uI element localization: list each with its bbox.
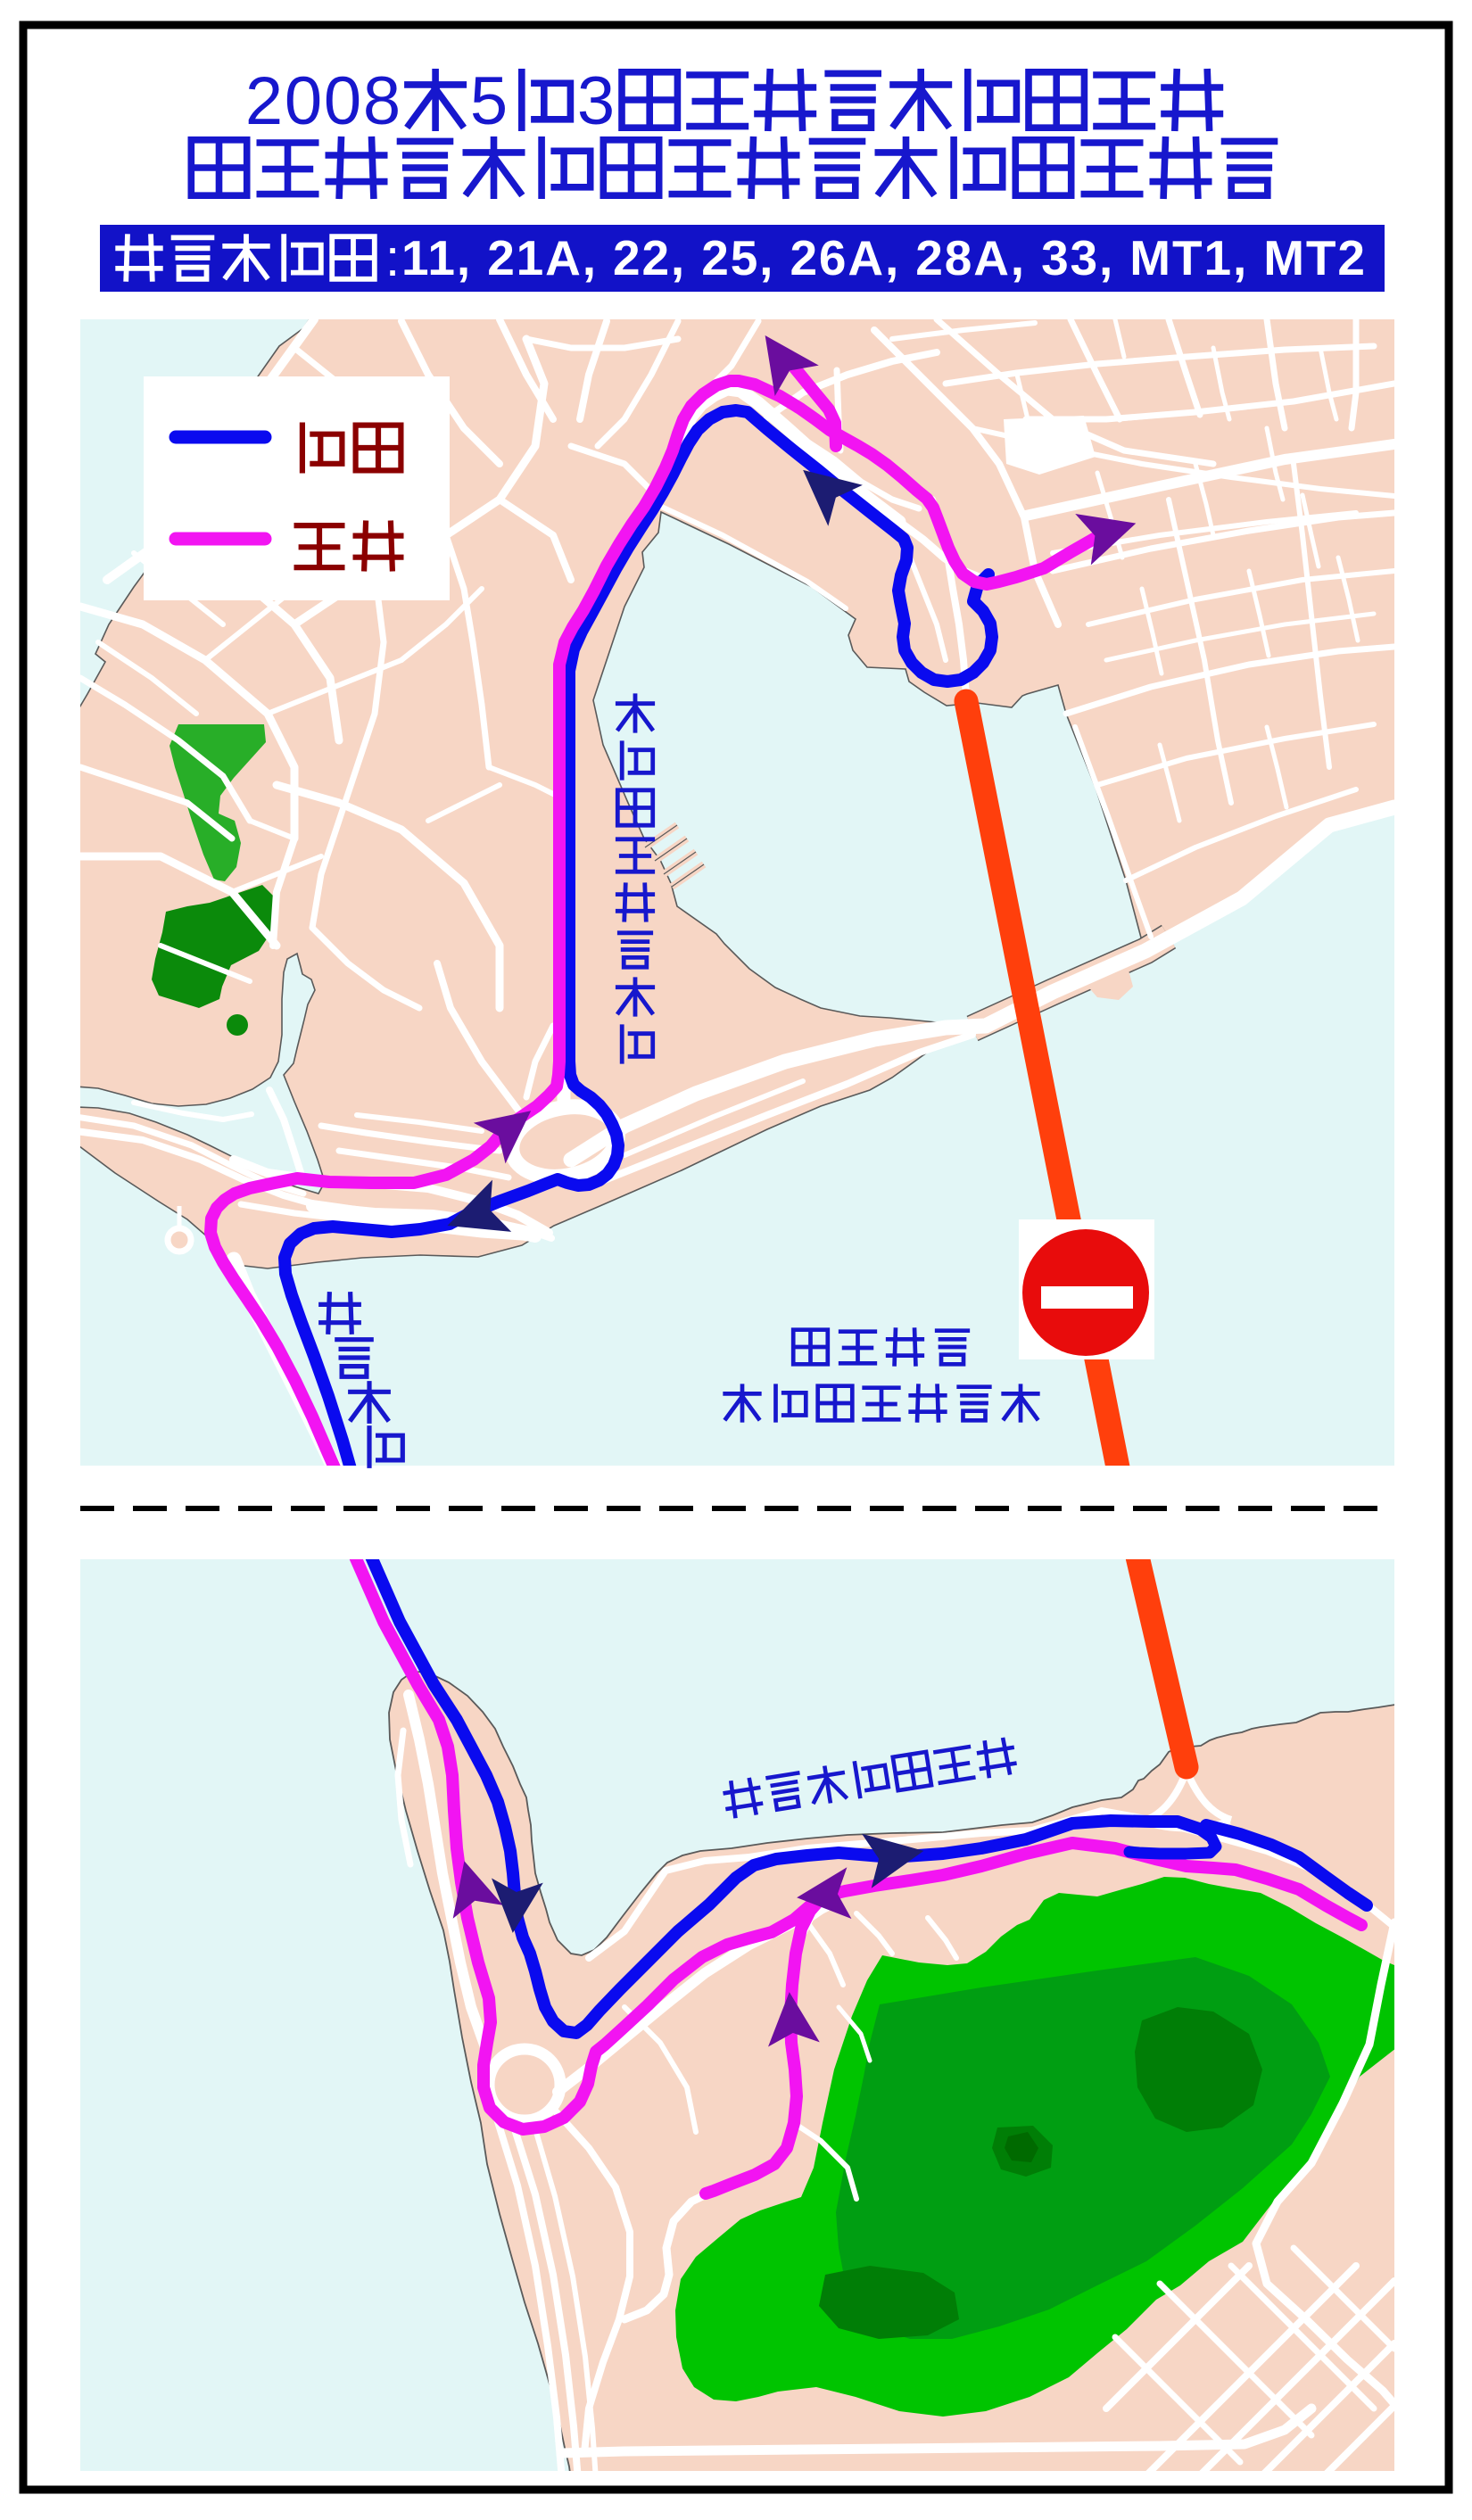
svg-text:5: 5 [470, 63, 508, 139]
svg-text:11, 21A, 22, 25, 26A, 28A, 33,: 11, 21A, 22, 25, 26A, 28A, 33, MT1, MT2 [401, 230, 1365, 285]
svg-text:3: 3 [577, 63, 615, 139]
svg-text:0: 0 [324, 63, 361, 139]
svg-text::: : [385, 229, 400, 287]
svg-text:2: 2 [245, 63, 283, 139]
svg-text:8: 8 [363, 63, 401, 139]
svg-text:0: 0 [285, 63, 322, 139]
